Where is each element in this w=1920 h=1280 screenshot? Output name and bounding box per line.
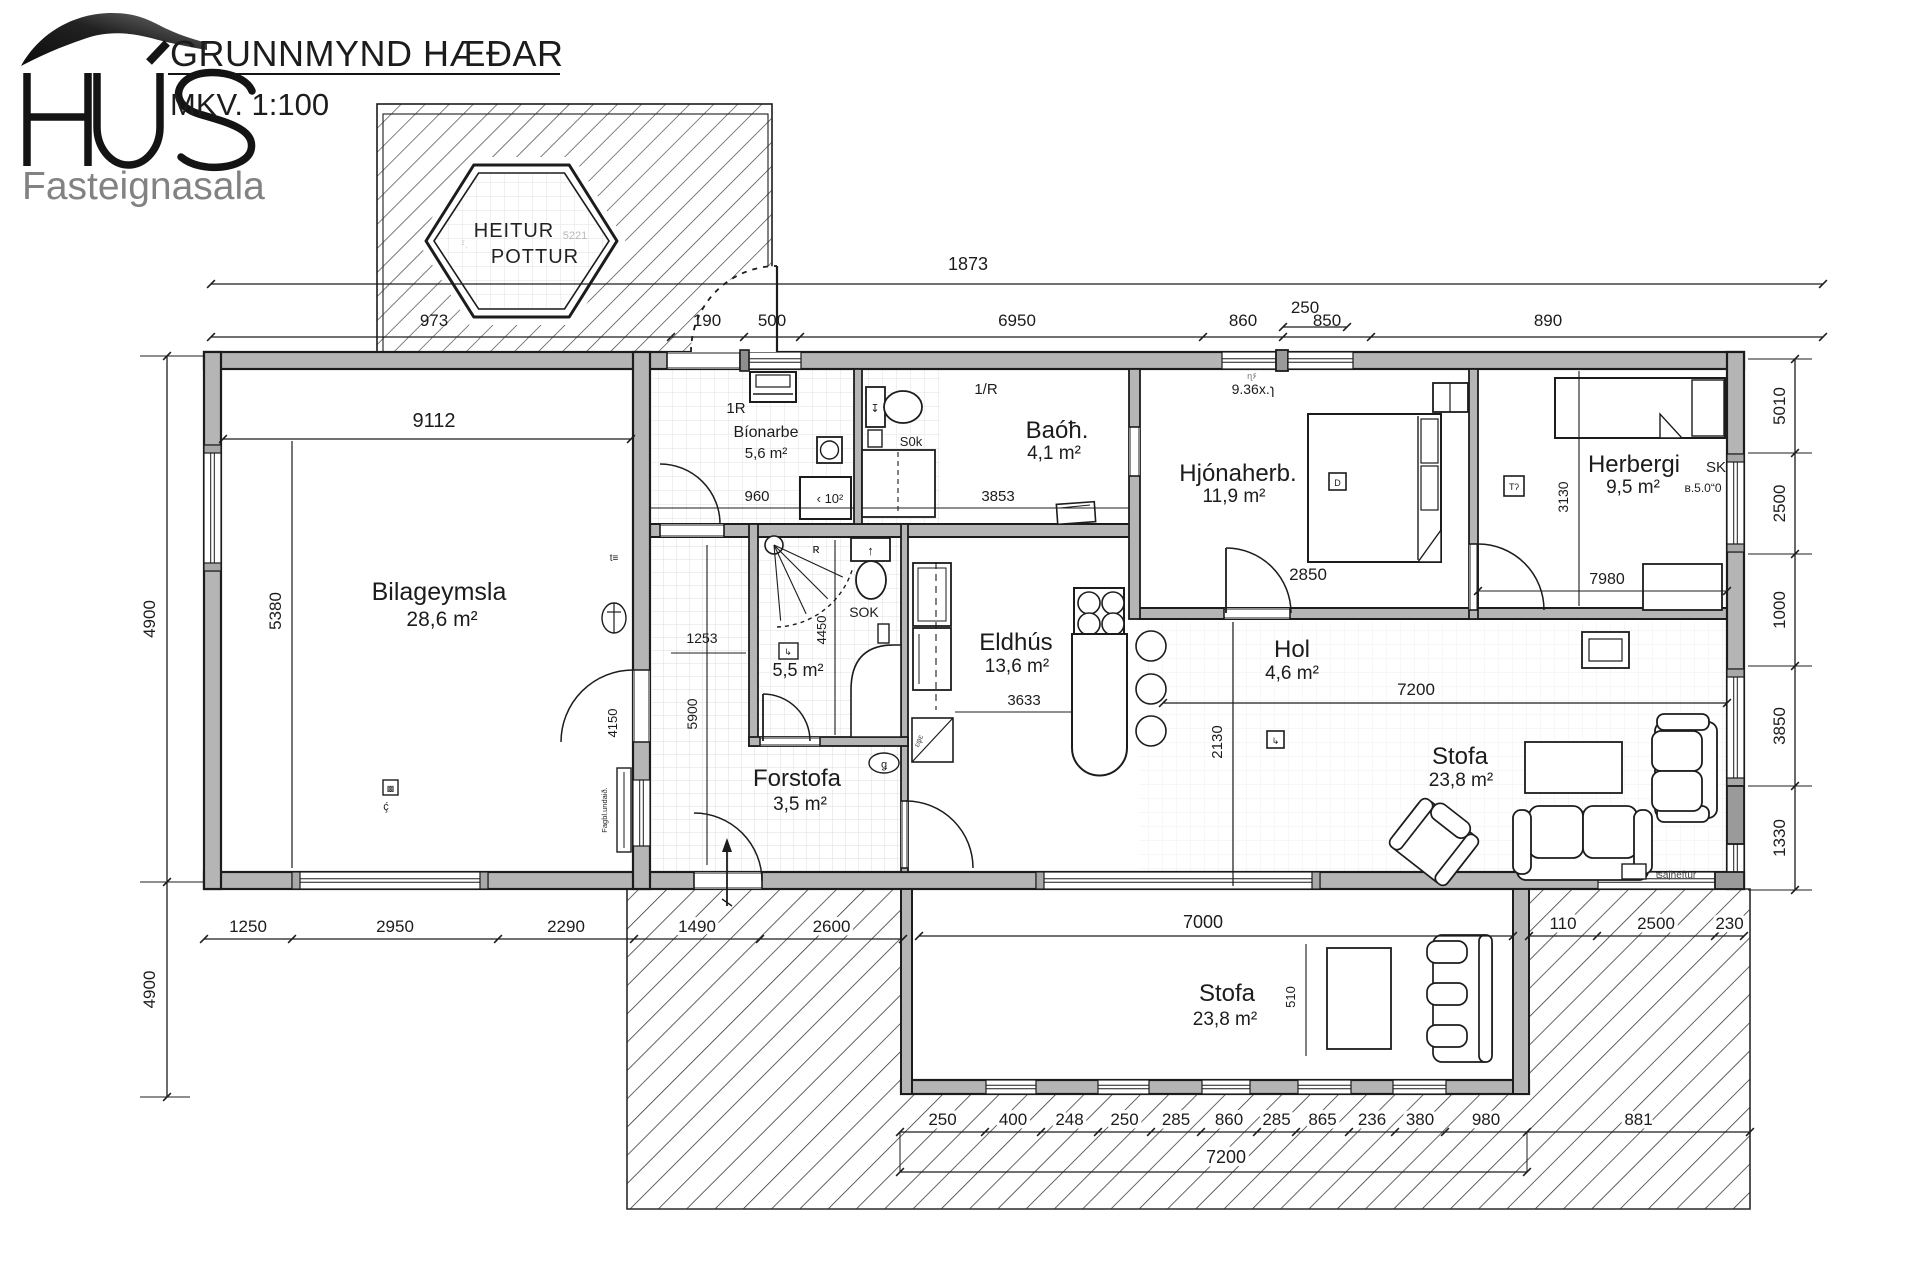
svg-text:5,5 m²: 5,5 m² bbox=[772, 660, 823, 680]
svg-text:248: 248 bbox=[1055, 1110, 1083, 1129]
svg-text:Forstofa: Forstofa bbox=[753, 765, 842, 792]
svg-text:1330: 1330 bbox=[1770, 819, 1789, 857]
svg-text:1250: 1250 bbox=[229, 917, 267, 936]
svg-text:ʀ: ʀ bbox=[812, 541, 819, 556]
svg-text:Eldhús: Eldhús bbox=[979, 629, 1052, 656]
svg-text:↧: ↧ bbox=[870, 403, 879, 415]
svg-text:2500: 2500 bbox=[1637, 914, 1675, 933]
svg-text:850: 850 bbox=[1313, 311, 1341, 330]
svg-text:23,8 m²: 23,8 m² bbox=[1429, 770, 1493, 791]
svg-text:‹ 10²: ‹ 10² bbox=[817, 491, 844, 506]
svg-text:510: 510 bbox=[1283, 986, 1298, 1008]
svg-text:3853: 3853 bbox=[981, 488, 1014, 505]
svg-text:23,8 m²: 23,8 m² bbox=[1193, 1009, 1257, 1030]
svg-text:865: 865 bbox=[1308, 1110, 1336, 1129]
svg-text:t≡: t≡ bbox=[610, 553, 619, 564]
svg-text:▩: ▩ bbox=[387, 784, 395, 793]
svg-text:4,6 m²: 4,6 m² bbox=[1265, 663, 1319, 684]
svg-text:7000: 7000 bbox=[1183, 912, 1223, 932]
svg-text:5221: 5221 bbox=[563, 230, 587, 242]
svg-text:3130: 3130 bbox=[1555, 481, 1571, 512]
svg-text:Fagbl.undaið.: Fagbl.undaið. bbox=[600, 787, 609, 832]
svg-text:9112: 9112 bbox=[412, 410, 455, 432]
svg-text:2500: 2500 bbox=[1770, 485, 1789, 523]
svg-text:ḉ: ḉ bbox=[383, 801, 389, 813]
svg-text:4900: 4900 bbox=[140, 971, 159, 1009]
svg-text:973: 973 bbox=[420, 311, 448, 330]
svg-text:HEITUR: HEITUR bbox=[474, 220, 554, 242]
svg-text:5380: 5380 bbox=[266, 592, 285, 630]
svg-text:4900: 4900 bbox=[140, 600, 159, 638]
svg-text:3,5 m²: 3,5 m² bbox=[773, 794, 827, 815]
svg-text:960: 960 bbox=[744, 488, 769, 505]
svg-text:2130: 2130 bbox=[1209, 725, 1226, 758]
svg-text:SK: SK bbox=[1706, 459, 1726, 476]
svg-text:9,5 m²: 9,5 m² bbox=[1606, 477, 1660, 498]
svg-text:Bilageymsla: Bilageymsla bbox=[372, 578, 507, 606]
svg-text:5010: 5010 bbox=[1770, 387, 1789, 425]
svg-text:250: 250 bbox=[1110, 1110, 1138, 1129]
svg-text:↳: ↳ bbox=[1272, 736, 1280, 746]
svg-text:Herbergi: Herbergi bbox=[1588, 451, 1680, 478]
svg-text:11,9 m²: 11,9 m² bbox=[1202, 486, 1265, 507]
svg-text:Hol: Hol bbox=[1274, 636, 1310, 663]
svg-text:9.36x.ɿ: 9.36x.ɿ bbox=[1232, 381, 1275, 397]
svg-text:230: 230 bbox=[1715, 914, 1743, 933]
svg-text:7980: 7980 bbox=[1589, 571, 1625, 588]
svg-text:4,1 m²: 4,1 m² bbox=[1027, 443, 1081, 464]
svg-text:13,6 m²: 13,6 m² bbox=[985, 656, 1049, 677]
svg-text:ʙ.5.0“0: ʙ.5.0“0 bbox=[1684, 481, 1721, 495]
svg-text:2290: 2290 bbox=[547, 917, 585, 936]
svg-text:3633: 3633 bbox=[1007, 692, 1040, 709]
svg-text:285: 285 bbox=[1262, 1110, 1290, 1129]
svg-text:2600: 2600 bbox=[813, 917, 851, 936]
svg-text:6950: 6950 bbox=[998, 311, 1036, 330]
svg-text:5,6 m²: 5,6 m² bbox=[745, 445, 788, 462]
svg-text:1/R: 1/R bbox=[974, 381, 998, 398]
svg-text:ʦaļheftur: ʦaļheftur bbox=[1656, 870, 1697, 881]
svg-text:↳: ↳ bbox=[784, 647, 792, 657]
svg-text:4150: 4150 bbox=[605, 709, 620, 738]
svg-text:236: 236 bbox=[1358, 1110, 1386, 1129]
svg-text:3850: 3850 bbox=[1770, 707, 1789, 745]
svg-text:250: 250 bbox=[928, 1110, 956, 1129]
svg-text:GRUNNMYND HÆÐAR: GRUNNMYND HÆÐAR bbox=[170, 33, 564, 74]
svg-text:28,6 m²: 28,6 m² bbox=[406, 608, 477, 631]
svg-text:1R: 1R bbox=[726, 400, 745, 417]
svg-text:110: 110 bbox=[1549, 914, 1576, 933]
svg-text:S0k: S0k bbox=[900, 434, 923, 449]
svg-text:7200: 7200 bbox=[1397, 680, 1435, 699]
svg-text:1490: 1490 bbox=[678, 917, 716, 936]
svg-text:MKV. 1:100: MKV. 1:100 bbox=[170, 87, 329, 122]
svg-text:ǥ: ǥ bbox=[881, 759, 888, 771]
svg-text:5900: 5900 bbox=[684, 698, 700, 729]
svg-text:Fasteignasala: Fasteignasala bbox=[22, 165, 265, 208]
svg-text:4450: 4450 bbox=[814, 616, 829, 645]
svg-text:1253: 1253 bbox=[686, 630, 717, 646]
svg-text:7200: 7200 bbox=[1206, 1147, 1246, 1167]
svg-text:1873: 1873 bbox=[948, 254, 988, 274]
svg-text:890: 890 bbox=[1534, 311, 1562, 330]
svg-text:SOK: SOK bbox=[849, 604, 879, 620]
svg-text:Baóħ.: Baóħ. bbox=[1026, 417, 1089, 444]
svg-text:POTTUR: POTTUR bbox=[491, 246, 579, 268]
svg-text:Tʔ: Tʔ bbox=[1509, 482, 1519, 492]
svg-text:380: 380 bbox=[1406, 1110, 1434, 1129]
svg-text:285: 285 bbox=[1162, 1110, 1190, 1129]
svg-text:Hjónaherb.: Hjónaherb. bbox=[1179, 460, 1296, 487]
svg-text:D: D bbox=[1334, 478, 1341, 488]
svg-text:500: 500 bbox=[758, 311, 786, 330]
svg-text:2950: 2950 bbox=[376, 917, 414, 936]
svg-text:2850: 2850 bbox=[1289, 565, 1327, 584]
svg-text:860: 860 bbox=[1215, 1110, 1243, 1129]
svg-text:1000: 1000 bbox=[1770, 591, 1789, 629]
svg-text:Stofa: Stofa bbox=[1199, 980, 1256, 1007]
svg-text:400: 400 bbox=[999, 1110, 1027, 1129]
svg-text:190: 190 bbox=[693, 311, 721, 330]
svg-text:ɳ۶: ɳ۶ bbox=[1247, 371, 1257, 381]
svg-text:881: 881 bbox=[1624, 1110, 1652, 1129]
svg-text:860: 860 bbox=[1229, 311, 1257, 330]
svg-text:↑: ↑ bbox=[867, 543, 874, 558]
svg-text:Bíonarbe: Bíonarbe bbox=[734, 424, 799, 441]
svg-text:Stofa: Stofa bbox=[1432, 743, 1489, 770]
svg-text:980: 980 bbox=[1472, 1110, 1500, 1129]
